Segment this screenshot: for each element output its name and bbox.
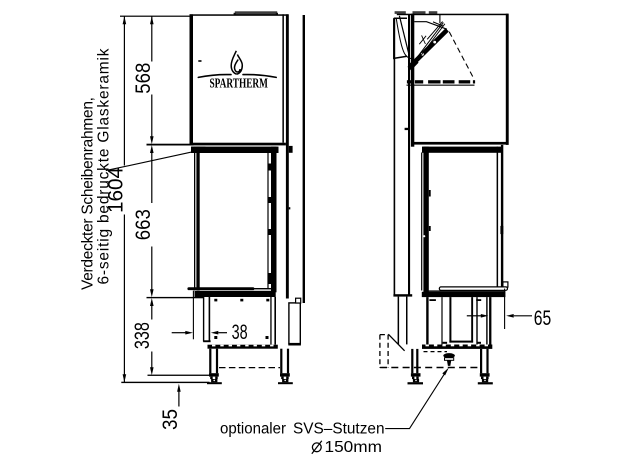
svg-text:663: 663 (132, 209, 155, 240)
svg-text:65: 65 (534, 307, 552, 330)
svg-text:Verdeckter Scheibenrahmen,: Verdeckter Scheibenrahmen, (80, 97, 97, 290)
svg-text:38: 38 (232, 321, 248, 344)
svg-text:338: 338 (131, 322, 154, 349)
svg-text:optionaler: optionaler (220, 421, 286, 438)
svg-text:6-seitig bedruckte Glaskeramik: 6-seitig bedruckte Glaskeramik (96, 48, 113, 284)
svg-text:SPARTHERM: SPARTHERM (210, 77, 268, 92)
svg-text:568: 568 (132, 63, 155, 94)
svg-text:150mm: 150mm (325, 439, 383, 456)
svg-text:35: 35 (159, 409, 182, 430)
svg-text:SVS–Stutzen: SVS–Stutzen (293, 421, 385, 438)
